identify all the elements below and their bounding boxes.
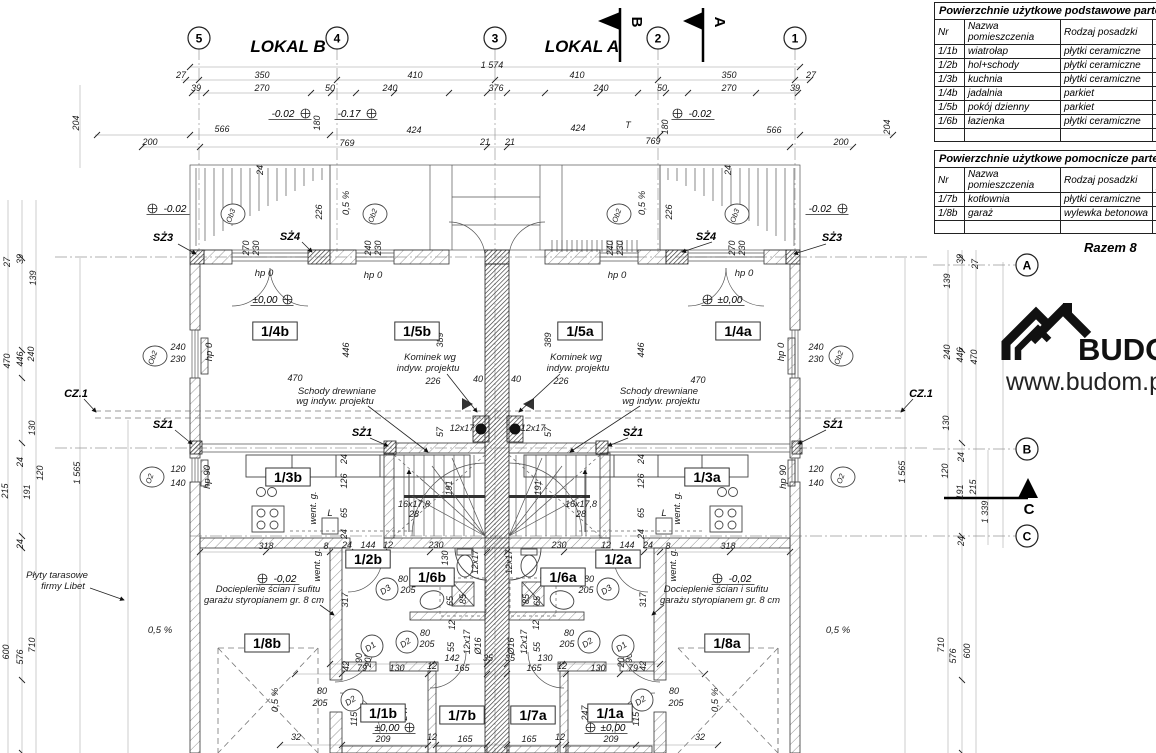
dim-label: 205 — [667, 698, 684, 708]
dim-label: 24 — [339, 454, 349, 465]
dim-label: 318 — [720, 541, 735, 551]
dim-label: 446 — [341, 342, 351, 357]
garage-left — [218, 648, 318, 753]
room-label-1/4a: 1/4a — [724, 323, 751, 339]
dim-label: 270 — [727, 240, 737, 256]
annotation: Docieplenie ścian i sufitu — [664, 584, 769, 595]
staircase-left — [394, 455, 485, 536]
dim-label: 39 — [955, 254, 965, 264]
dim-label: 79 — [357, 663, 367, 673]
dim-label: 424 — [406, 125, 421, 135]
dim-label: 120 — [35, 465, 45, 480]
dim-label: 139 — [28, 270, 38, 285]
area-table-basic: Powierzchnie użytkowe podstawowe parteru… — [934, 2, 1156, 142]
dim-label: 142 — [444, 653, 459, 663]
room-label-1/2a: 1/2a — [604, 551, 631, 567]
dim-label: 130 — [590, 663, 605, 673]
dim-label: 350 — [254, 70, 269, 80]
annotation: went. g. — [672, 491, 683, 524]
grid-bubble-label-5: 5 — [196, 32, 203, 46]
dim-label: 191 — [444, 480, 454, 495]
dim-label: 130 — [537, 653, 552, 663]
dim-label: 446 — [636, 342, 646, 357]
dim-label: 205 — [311, 698, 328, 708]
level-mark: ±0,00 — [718, 295, 743, 306]
dim-label: 204 — [882, 119, 892, 135]
dim-label: 12 — [531, 620, 541, 630]
annotation: hp 0 — [364, 270, 383, 281]
annotation: hp 0 — [255, 268, 274, 279]
dim-label: 42 — [341, 661, 351, 671]
marker-CZ.1: CZ.1 — [909, 388, 933, 400]
dim-label: 318 — [258, 541, 273, 551]
dim-label: 1 565 — [897, 460, 907, 484]
dim-label: 24 — [636, 529, 646, 540]
dim-label: 12x17 — [521, 423, 547, 433]
dim-label: 204 — [71, 115, 81, 131]
room-label-1/7b: 1/7b — [448, 707, 476, 723]
annotation: went. g. — [668, 548, 679, 581]
dim-label: 566 — [766, 125, 781, 135]
dim-label: 12 — [383, 540, 393, 550]
dim-label: 226 — [314, 204, 324, 220]
marker-SŻ3: SŻ3 — [153, 231, 173, 244]
dim-label: 600 — [962, 643, 972, 658]
annotation: went. g. — [312, 548, 323, 581]
grid-bubble-label-B: B — [1023, 443, 1032, 457]
dim-label: 24 — [339, 529, 349, 540]
marker-SŻ1: SŻ1 — [623, 426, 643, 439]
dim-label: 24 — [15, 457, 25, 468]
dim-label: 230 — [427, 540, 443, 550]
dim-label: 470 — [287, 373, 302, 383]
dim-label: 270 — [720, 83, 736, 93]
dim-label: 39 — [15, 254, 25, 264]
dim-label: 240 — [363, 240, 373, 256]
dim-label: 12x17 — [462, 629, 472, 655]
dim-label: 215 — [0, 483, 10, 500]
dim-label: 769 — [645, 136, 660, 146]
dim-label: 24 — [15, 539, 25, 550]
dim-label: 126 — [339, 473, 349, 488]
annotation: 0,5 % — [826, 625, 851, 636]
dim-label: 24 — [956, 536, 966, 547]
dim-label: 140 — [170, 478, 185, 488]
dim-label: 12 — [601, 540, 611, 550]
dim-label: 130 — [440, 550, 450, 565]
table-title-row: Powierzchnie użytkowe podstawowe parteru… — [935, 3, 1156, 20]
marker-SŻ1: SŻ1 — [153, 418, 173, 431]
dim-label: 144 — [360, 540, 375, 550]
dim-label: 470 — [690, 375, 705, 385]
grid-bubble-label-3: 3 — [492, 32, 499, 46]
annotation: Płyty tarasowe — [26, 570, 88, 581]
dim-label: 240 — [605, 240, 615, 256]
dim-label: 24 — [723, 165, 733, 176]
dim-label: 165 — [454, 663, 470, 673]
annotation: wg indyw. projektu — [622, 396, 700, 407]
dim-label: 350 — [721, 70, 736, 80]
dim-label: 27 — [805, 70, 817, 80]
room-label-1/4b: 1/4b — [261, 323, 289, 339]
dim-label: 120 — [170, 464, 185, 474]
dim-label: 144 — [619, 540, 634, 550]
dim-label: 39 — [790, 83, 800, 93]
level-mark: -0.02 — [164, 204, 187, 215]
dim-label: 65 — [636, 507, 646, 518]
dim-label: 55 — [446, 641, 456, 652]
dim-label: 230 — [251, 240, 261, 256]
dim-label: 85 — [521, 593, 531, 604]
dim-label: 226 — [552, 376, 568, 386]
room-label-1/5b: 1/5b — [403, 323, 431, 339]
dim-label: 200 — [141, 137, 157, 147]
dim-label: 40 — [511, 374, 521, 384]
dim-label: 1 574 — [481, 60, 504, 70]
dim-label: 80 — [420, 628, 430, 638]
dim-label: 376 — [488, 83, 503, 93]
dim-label: 27 — [175, 70, 187, 80]
dim-label: 24 — [341, 540, 352, 550]
room-label-1/1b: 1/1b — [369, 705, 397, 721]
dim-label: 35 — [505, 653, 516, 663]
dim-label: 12x17 — [450, 423, 476, 433]
dim-label: 470 — [969, 349, 979, 364]
grid-bubble-label-C: C — [1023, 530, 1032, 544]
area-table-aux: Powierzchnie użytkowe pomocnicze parteru… — [934, 150, 1156, 234]
dim-label: 209 — [374, 734, 390, 744]
table-title-row: Powierzchnie użytkowe pomocnicze parteru… — [935, 151, 1156, 168]
dim-label: 40 — [473, 374, 483, 384]
dim-label: 24 — [956, 452, 966, 463]
level-mark: -0.17 — [338, 109, 361, 120]
dim-label: 230 — [373, 240, 383, 256]
dim-label: 576 — [15, 649, 25, 664]
marker-SŻ4: SŻ4 — [280, 230, 300, 243]
annotation: wg indyw. projektu — [296, 396, 374, 407]
dim-label: 139 — [942, 273, 952, 288]
dim-label: 32 — [695, 732, 705, 742]
annotation: Kominek wg — [550, 352, 602, 363]
room-label-1/2b: 1/2b — [354, 551, 382, 567]
grid-bubble-label-A: A — [1023, 259, 1032, 273]
dim-label: 24 — [642, 540, 653, 550]
marker-SŻ4: SŻ4 — [696, 230, 716, 243]
dim-label: 389 — [543, 332, 553, 347]
dim-label: 130 — [941, 415, 951, 430]
annotation: Docieplenie ścian i sufitu — [216, 584, 321, 595]
dim-label: 240 — [26, 346, 36, 362]
dim-label: 21 — [504, 137, 515, 147]
dim-label: 42 — [638, 661, 648, 671]
dim-label: 165 — [526, 663, 542, 673]
dim-label: 55 — [532, 641, 542, 652]
annotation: 0,5 % — [270, 687, 281, 712]
dim-label: 12 — [557, 661, 567, 671]
dim-label: 130 — [389, 663, 404, 673]
dim-label: 410 — [569, 70, 584, 80]
dim-label: 209 — [602, 734, 618, 744]
grid-bubble-label-4: 4 — [334, 32, 341, 46]
annotation: hp 0 — [735, 268, 754, 279]
dim-label: 80 — [669, 686, 679, 696]
flag-label-a: A — [711, 17, 728, 28]
dim-label: 12x17 — [470, 549, 480, 575]
grid-bubble-label-1: 1 — [792, 32, 799, 46]
dim-label: 270 — [253, 83, 269, 93]
table-row: 1/1bwiatrołappłytki ceramiczne — [935, 45, 1156, 59]
dim-label: 566 — [214, 124, 229, 134]
dim-label: 28 — [408, 509, 419, 519]
dim-label: 165 — [521, 734, 537, 744]
room-label-1/6b: 1/6b — [418, 569, 446, 585]
dim-label: 80 — [398, 574, 408, 584]
dim-label: 57 — [435, 426, 445, 437]
dim-label: 24 — [636, 454, 646, 465]
dim-label: 21 — [479, 137, 490, 147]
annotation: 0,5 % — [637, 190, 648, 215]
annotation: hp 0 — [776, 342, 787, 361]
annotation: L — [661, 508, 666, 519]
dim-label: 65 — [445, 595, 455, 606]
dim-label: 470 — [2, 353, 12, 368]
dim-label: 80 — [564, 628, 574, 638]
marker-SŻ1: SŻ1 — [352, 426, 372, 439]
dim-label: 27 — [2, 256, 12, 268]
room-label-1/3a: 1/3a — [693, 469, 720, 485]
dim-label: 230 — [737, 240, 747, 256]
dim-label: 12 — [447, 620, 457, 630]
room-label-1/8b: 1/8b — [253, 635, 281, 651]
level-mark: -0.02 — [689, 109, 712, 120]
dim-label: 16x17,8 — [398, 499, 430, 509]
dim-label: 226 — [424, 376, 440, 386]
table-row: 1/3bkuchniapłytki ceramiczne — [935, 73, 1156, 87]
dim-label: 240 — [592, 83, 608, 93]
dim-label: 205 — [558, 639, 575, 649]
lokal-b-title: LOKAL B — [250, 37, 325, 56]
level-mark: -0,02 — [274, 574, 297, 585]
dim-label: 710 — [27, 637, 37, 652]
dim-label: 165 — [457, 734, 473, 744]
dim-label: 191 — [22, 484, 32, 499]
level-mark: -0.02 — [272, 109, 295, 120]
room-label-1/8a: 1/8a — [713, 635, 740, 651]
table-row: 1/8bgarażwylewka betonowa — [935, 207, 1156, 221]
level-mark: ±0,00 — [253, 295, 278, 306]
party-wall — [485, 264, 509, 753]
brand-logo: BUDOM www.budom.pl — [1005, 303, 1156, 396]
dim-label: 120 — [808, 464, 823, 474]
dim-label: 240 — [942, 344, 952, 360]
flag-label-c: C — [1024, 501, 1035, 518]
dim-label: Ø16 — [473, 637, 483, 655]
room-label-1/6a: 1/6a — [549, 569, 576, 585]
dim-label: 28 — [575, 509, 586, 519]
annotation: went. g. — [308, 491, 319, 524]
dim-label: 215 — [968, 479, 978, 496]
dim-label: 270 — [241, 240, 251, 256]
marker-SŻ3: SŻ3 — [822, 231, 842, 244]
garage-right — [678, 648, 778, 753]
dim-label: 12 — [427, 661, 437, 671]
staircase-right — [509, 455, 600, 536]
dim-label: 424 — [570, 123, 585, 133]
level-mark: -0.02 — [809, 204, 832, 215]
annotation: 0,5 % — [148, 625, 173, 636]
table-row: 1/6błazienkapłytki ceramiczne — [935, 115, 1156, 129]
dim-label: 79 — [628, 663, 638, 673]
dim-label: 769 — [339, 138, 354, 148]
table-row: 1/2bhol+schodypłytki ceramiczne — [935, 59, 1156, 73]
room-label-1/7a: 1/7a — [519, 707, 546, 723]
dim-label: 230 — [807, 354, 823, 364]
level-mark: ±0,00 — [375, 723, 400, 734]
dim-label: 1 339 — [980, 501, 990, 524]
dim-label: 600 — [1, 644, 11, 659]
dim-label: 226 — [664, 204, 674, 220]
annotation: indyw. projektu — [397, 363, 461, 374]
level-mark: -0,02 — [729, 574, 752, 585]
room-label-1/5a: 1/5a — [566, 323, 593, 339]
dim-label: 12 — [427, 732, 437, 742]
dim-label: 180 — [312, 115, 322, 130]
flag-label-b: B — [628, 17, 645, 28]
dim-label: 27 — [970, 258, 980, 270]
terrace-left — [190, 165, 330, 250]
table-row: 1/7bkotłowniapłytki ceramiczne — [935, 193, 1156, 207]
total-label: Razem 8 — [1084, 240, 1156, 255]
dim-label: 80 — [317, 686, 327, 696]
table-row: 1/5bpokój dziennyparkiet — [935, 101, 1156, 115]
dim-label: 130 — [27, 420, 37, 435]
dim-label: 1 565 — [72, 461, 82, 485]
dim-label: 230 — [615, 240, 625, 256]
dim-label: 240 — [169, 342, 185, 352]
annotation: garażu styropianem gr. 8 cm — [204, 595, 324, 606]
table-header-row: NrNazwapomieszczeniaRodzaj posadzkiPow[m… — [935, 20, 1156, 45]
blueprint-canvas: B A C LOKAL B LOKAL A BUDOM www.budom.pl… — [0, 0, 1156, 753]
annotation: hp 90 — [778, 464, 789, 488]
annotation: hp 0 — [204, 342, 215, 361]
annotation: indyw. projektu — [547, 363, 611, 374]
dim-label: 140 — [808, 478, 823, 488]
dim-label: 32 — [291, 732, 301, 742]
dim-label: 85 — [458, 593, 468, 604]
dim-label: 115 — [349, 711, 359, 726]
annotation: 0,5 % — [710, 687, 721, 712]
dim-label: 126 — [636, 473, 646, 488]
dim-label: 120 — [940, 463, 950, 478]
dim-label: 35 — [483, 653, 494, 663]
dim-label: 576 — [948, 648, 958, 663]
dim-label: 50 — [657, 83, 667, 93]
dim-label: 50 — [325, 83, 335, 93]
grid-bubbles: 54321ABC — [188, 27, 1038, 547]
level-mark: ±0,00 — [601, 723, 626, 734]
table-row: 1/4bjadalniaparkiet — [935, 87, 1156, 101]
dim-label: 317 — [340, 592, 350, 608]
dim-label: 205 — [418, 639, 435, 649]
dim-label: 410 — [407, 70, 422, 80]
annotation: garażu styropianem gr. 8 cm — [660, 595, 780, 606]
annotation: hp 90 — [202, 464, 213, 488]
dim-label: 317 — [638, 592, 648, 608]
annotation: hp 0 — [608, 270, 627, 281]
dim-label: 39 — [191, 83, 201, 93]
dim-label: 230 — [169, 354, 185, 364]
annotation: Kominek wg — [404, 352, 456, 363]
dim-label: 16x17,8 — [565, 499, 597, 509]
room-label-1/1a: 1/1a — [596, 705, 623, 721]
annotation: 0,5 % — [341, 190, 352, 215]
section-flag-a: A — [683, 8, 728, 62]
dim-label: 446 — [15, 351, 25, 366]
dim-label: 200 — [832, 137, 848, 147]
dim-label: 12x17 — [519, 629, 529, 655]
dim-label: 191 — [955, 484, 965, 499]
marker-SŻ1: SŻ1 — [823, 418, 843, 431]
dim-label: 240 — [381, 83, 397, 93]
table-header-row: NrNazwapomieszczeniaRodzaj posadzkiPow[m… — [935, 168, 1156, 193]
right-panel: Powierzchnie użytkowe podstawowe parteru… — [934, 2, 1156, 255]
dim-label: 24 — [255, 165, 265, 176]
dim-label: 240 — [807, 342, 823, 352]
dim-label: 12x17 — [504, 549, 514, 575]
room-label-1/3b: 1/3b — [274, 469, 302, 485]
lokal-a-title: LOKAL A — [545, 37, 620, 56]
annotation: firmy Libet — [41, 581, 85, 592]
annotation: L — [327, 508, 332, 519]
dim-label: 8 — [323, 541, 328, 551]
dim-label: 230 — [550, 540, 566, 550]
dim-label: 446 — [955, 347, 965, 362]
brand-name: BUDOM — [1078, 332, 1156, 367]
brand-url: www.budom.pl — [1005, 368, 1156, 396]
dim-label: T — [625, 120, 632, 130]
marker-CZ.1: CZ.1 — [64, 388, 88, 400]
dim-label: 65 — [339, 507, 349, 518]
dim-label: 12 — [555, 732, 565, 742]
grid-bubble-label-2: 2 — [655, 32, 662, 46]
dim-label: 710 — [936, 637, 946, 652]
dim-label: 180 — [660, 119, 670, 134]
dim-label: 191 — [533, 480, 543, 495]
dim-label: 65 — [532, 595, 542, 606]
